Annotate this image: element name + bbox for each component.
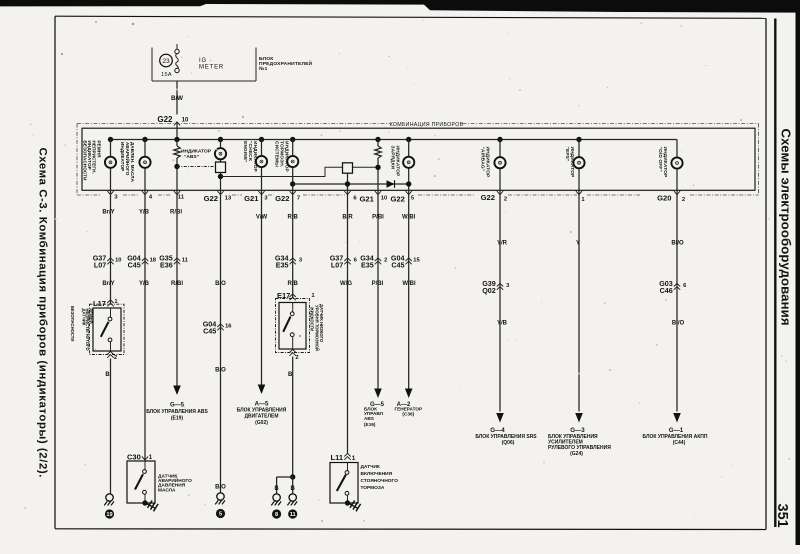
svg-text:G22: G22 — [275, 194, 289, 203]
svg-text:Bl/O: Bl/O — [671, 241, 684, 247]
svg-text:2: 2 — [682, 197, 685, 203]
svg-text:G—1: G—1 — [669, 427, 684, 434]
svg-text:(E19): (E19) — [364, 422, 376, 427]
svg-text:БЛОК УПРАВЛЕНИЯ АКПП: БЛОК УПРАВЛЕНИЯ АКПП — [643, 434, 708, 440]
svg-text:P/Bl: P/Bl — [372, 281, 384, 287]
svg-text:БЕЗОПАСНОСТИ: БЕЗОПАСНОСТИ — [83, 141, 88, 181]
svg-text:G22: G22 — [204, 194, 218, 203]
svg-text:E35: E35 — [276, 261, 289, 270]
svg-text:W/Bl: W/Bl — [402, 281, 416, 287]
svg-text:15: 15 — [413, 258, 420, 264]
svg-text:1: 1 — [149, 454, 153, 461]
svg-text:7: 7 — [297, 196, 300, 202]
svg-text:B/W: B/W — [171, 95, 183, 102]
svg-text:B/O: B/O — [215, 368, 226, 374]
svg-text:ДВИГАТЕЛЕМ: ДВИГАТЕЛЕМ — [244, 413, 278, 419]
svg-text:1: 1 — [352, 455, 356, 462]
svg-text:G—4: G—4 — [490, 427, 505, 434]
svg-text:МАСЛА: МАСЛА — [158, 487, 176, 493]
svg-text:ИНДИКАТОР: ИНДИКАТОР — [252, 141, 258, 173]
svg-text:РЕМНЯ: РЕМНЯ — [89, 309, 94, 324]
svg-text:E36: E36 — [160, 261, 173, 270]
svg-text:11: 11 — [178, 195, 185, 201]
svg-text:C46: C46 — [660, 286, 673, 295]
svg-text:L07: L07 — [94, 261, 106, 270]
svg-text:13: 13 — [225, 196, 232, 202]
svg-text:“O/D OFF”: “O/D OFF” — [657, 147, 663, 173]
svg-text:C45: C45 — [391, 261, 404, 270]
svg-text:R/Bl: R/Bl — [170, 210, 182, 216]
svg-text:Y/B: Y/B — [139, 210, 150, 216]
svg-text:ИНДИКАТОР: ИНДИКАТОР — [569, 147, 575, 179]
svg-text:Br/Y: Br/Y — [102, 210, 114, 216]
svg-text:Схемы электрооборудования: Схемы электрооборудования — [779, 129, 794, 326]
svg-text:E35: E35 — [361, 261, 374, 270]
svg-text:G22: G22 — [391, 195, 405, 204]
svg-text:B/O: B/O — [215, 485, 226, 491]
svg-text:B: B — [105, 372, 110, 378]
svg-text:ДАТЧИК НИЗКОГО: ДАТЧИК НИЗКОГО — [319, 304, 324, 343]
svg-text:10: 10 — [115, 258, 121, 264]
svg-text:ИНДИКАТОР: ИНДИКАТОР — [120, 142, 125, 171]
svg-text:(E19): (E19) — [171, 415, 184, 421]
svg-text:L17: L17 — [93, 299, 106, 308]
svg-text:G20: G20 — [657, 194, 671, 203]
svg-text:РЕМНЯ: РЕМНЯ — [96, 141, 101, 158]
svg-text:G22: G22 — [157, 115, 173, 124]
svg-text:2: 2 — [114, 355, 117, 361]
svg-text:Bl/O: Bl/O — [672, 321, 685, 327]
svg-text:18: 18 — [150, 258, 157, 264]
svg-text:ИНДИКАТОР: ИНДИКАТОР — [485, 147, 491, 179]
svg-text:15A: 15A — [161, 72, 172, 78]
svg-text:G22: G22 — [481, 193, 495, 202]
svg-text:КОМБИНАЦИЯ ПРИБОРОВ: КОМБИНАЦИЯ ПРИБОРОВ — [390, 122, 464, 128]
svg-text:G—5: G—5 — [170, 402, 185, 408]
svg-text:B: B — [288, 372, 293, 378]
svg-text:БЛОК УПРАВЛЕНИЯ ABS: БЛОК УПРАВЛЕНИЯ ABS — [146, 409, 208, 415]
svg-text:Y/B: Y/B — [139, 281, 150, 287]
svg-text:ИНДИКАТОР: ИНДИКАТОР — [87, 141, 92, 170]
svg-text:“ABS”: “ABS” — [184, 154, 200, 160]
svg-text:10: 10 — [182, 118, 189, 124]
svg-text:L11: L11 — [331, 453, 344, 462]
svg-text:10: 10 — [381, 196, 387, 202]
svg-text:G21: G21 — [244, 194, 259, 203]
svg-text:R/B: R/B — [288, 281, 299, 287]
svg-text:5: 5 — [219, 512, 222, 518]
svg-text:Br/Y: Br/Y — [102, 281, 114, 287]
svg-text:C45: C45 — [203, 327, 216, 336]
svg-text:НЕПРИСТЕГН.: НЕПРИСТЕГН. — [92, 141, 97, 174]
svg-text:БЛОК УПРАВЛЕНИЯ SRS: БЛОК УПРАВЛЕНИЯ SRS — [475, 434, 537, 440]
svg-text:351: 351 — [774, 504, 790, 528]
svg-text:УРОВНЯ ТОРМОЗНОЙ: УРОВНЯ ТОРМОЗНОЙ — [314, 305, 319, 351]
svg-text:Схема С-3. Комбинация приборов: Схема С-3. Комбинация приборов (индикато… — [37, 148, 49, 479]
svg-text:ДАТЧИК: ДАТЧИК — [361, 464, 380, 470]
svg-text:11: 11 — [182, 258, 189, 264]
svg-text:16: 16 — [225, 324, 232, 330]
svg-text:2: 2 — [295, 355, 298, 361]
svg-text:IG ·: IG · — [199, 58, 212, 64]
svg-text:C45: C45 — [128, 261, 141, 270]
svg-text:ABS: ABS — [364, 416, 374, 421]
svg-text:R/Bl: R/Bl — [171, 281, 183, 287]
svg-text:C30: C30 — [127, 452, 141, 461]
svg-text:“AIRBAG”: “AIRBAG” — [480, 147, 486, 172]
svg-text:23: 23 — [162, 58, 170, 65]
svg-text:B/O: B/O — [215, 281, 226, 287]
svg-text:19: 19 — [106, 512, 112, 518]
svg-text:Q02: Q02 — [482, 286, 496, 295]
svg-text:ЖИДКОСТИ: ЖИДКОСТИ — [310, 306, 315, 331]
svg-text:2: 2 — [504, 197, 507, 203]
svg-text:“EPS”: “EPS” — [564, 147, 570, 163]
svg-text:B: B — [291, 486, 296, 492]
svg-text:8: 8 — [275, 512, 278, 518]
svg-text:ИНДИКАТОР: ИНДИКАТОР — [662, 147, 668, 179]
svg-text:B: B — [274, 486, 279, 492]
svg-text:Y/B: Y/B — [497, 321, 508, 327]
svg-text:ДАВЛЕН. МАСЛА: ДАВЛЕН. МАСЛА — [130, 142, 135, 183]
svg-text:(C44): (C44) — [673, 440, 686, 446]
svg-text:СТОЯНОЧНОГО: СТОЯНОЧНОГО — [361, 478, 399, 484]
svg-text:A—5: A—5 — [255, 401, 269, 407]
svg-text:БЕЗОПАСНОСТИ: БЕЗОПАСНОСТИ — [70, 306, 75, 341]
svg-text:ИНДИКАТОР: ИНДИКАТОР — [284, 141, 290, 173]
svg-text:(Q06): (Q06) — [502, 440, 515, 446]
svg-text:Y/R: Y/R — [497, 241, 508, 247]
svg-text:ВКЛЮЧЕНИЯ: ВКЛЮЧЕНИЯ — [361, 471, 393, 477]
svg-text:ГЕНЕРАТОР: ГЕНЕРАТОР — [394, 406, 422, 411]
svg-text:L07: L07 — [331, 261, 343, 270]
svg-text:№1: №1 — [259, 66, 268, 72]
svg-text:2: 2 — [384, 258, 387, 264]
svg-text:ИНДИКАТОР: ИНДИКАТОР — [395, 146, 401, 178]
svg-text:(C36): (C36) — [402, 412, 414, 417]
svg-text:G21: G21 — [360, 195, 375, 204]
svg-text:(G24): (G24) — [570, 451, 583, 457]
svg-text:G—3: G—3 — [570, 427, 585, 434]
svg-text:11: 11 — [290, 512, 296, 518]
svg-text:ТОРМОЗА: ТОРМОЗА — [361, 485, 385, 491]
svg-text:(G02): (G02) — [255, 420, 268, 426]
svg-text:W/G: W/G — [340, 281, 352, 287]
svg-text:METER: METER — [199, 65, 224, 71]
svg-text:ИНДИКАТОР: ИНДИКАТОР — [181, 149, 212, 155]
